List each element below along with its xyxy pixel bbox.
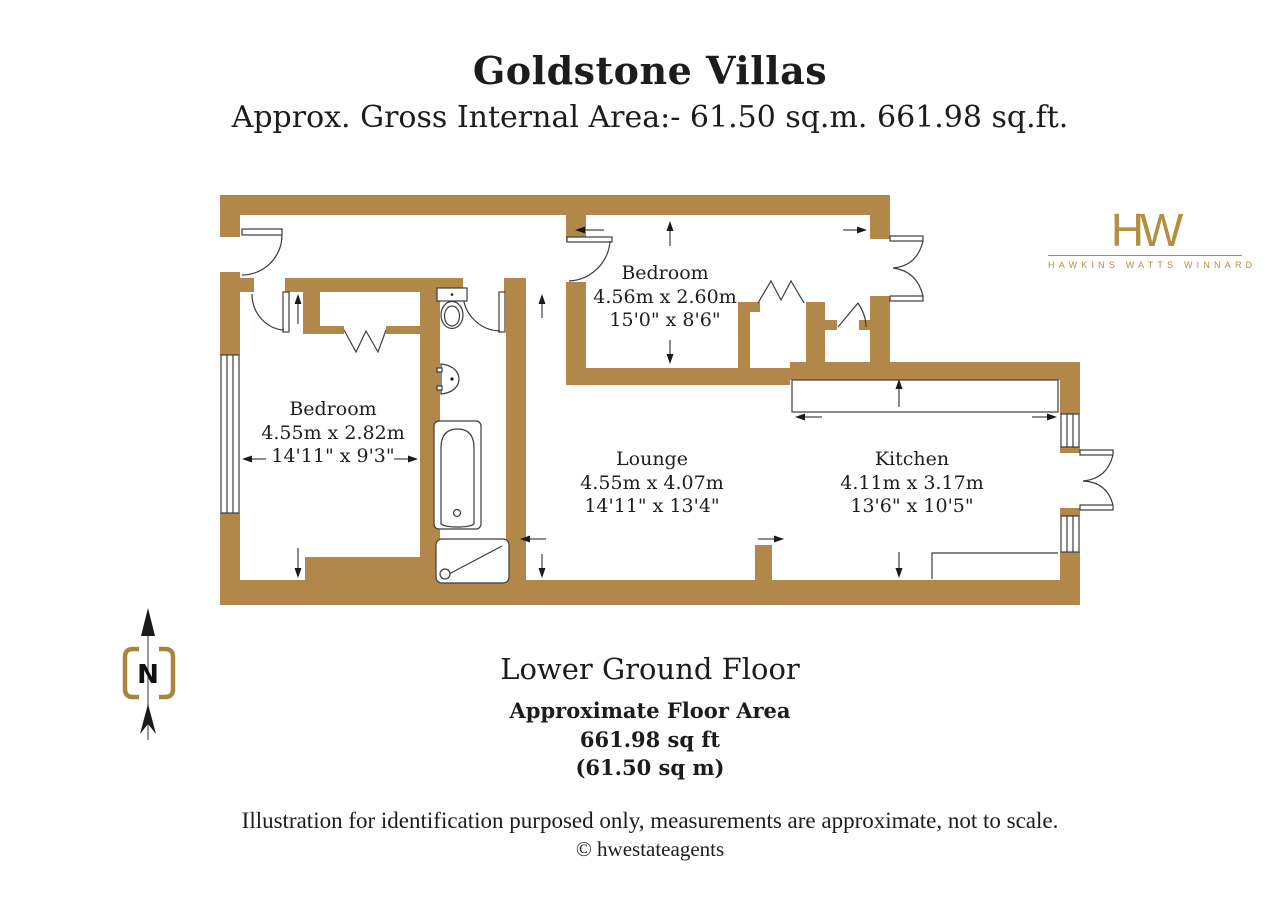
- window-kitchen-right-upper: [1061, 414, 1079, 447]
- room-dims-imperial: 14'11" x 9'3": [223, 445, 443, 469]
- shower-icon: [436, 539, 509, 583]
- room-dims-metric: 4.55m x 4.07m: [542, 472, 762, 496]
- room-name: Bedroom: [223, 398, 443, 422]
- bedroom-left-door: [252, 292, 289, 332]
- kitchen-counter: [932, 553, 1058, 579]
- room-dims-metric: 4.56m x 2.60m: [555, 286, 775, 310]
- floor-area-sqm: (61.50 sq m): [20, 754, 1280, 783]
- room-dims-metric: 4.55m x 2.82m: [223, 422, 443, 446]
- floor-area-sqft: 661.98 sq ft: [20, 726, 1280, 755]
- bathroom-fixtures: [434, 288, 509, 583]
- entrance-door: [242, 229, 282, 275]
- french-door-kitchen: [1080, 450, 1113, 510]
- toilet-icon: [437, 288, 467, 329]
- room-dims-imperial: 14'11" x 13'4": [542, 495, 762, 519]
- french-door-bedroom: [890, 236, 923, 301]
- room-label-bedroom-left: Bedroom 4.55m x 2.82m 14'11" x 9'3": [223, 398, 443, 469]
- floor-area-heading: Approximate Floor Area: [20, 697, 1280, 726]
- disclaimer-text: Illustration for identification purposed…: [20, 806, 1280, 836]
- copyright-text: © hwestateagents: [20, 836, 1280, 864]
- compass-arrowhead: [141, 608, 155, 636]
- room-dims-metric: 4.11m x 3.17m: [802, 472, 1022, 496]
- floor-area-block: Approximate Floor Area 661.98 sq ft (61.…: [20, 697, 1280, 783]
- room-label-lounge: Lounge 4.55m x 4.07m 14'11" x 13'4": [542, 448, 762, 519]
- wardrobe-bifold-doors-bedroom-left: [344, 330, 386, 352]
- room-name: Kitchen: [802, 448, 1022, 472]
- bathroom-door: [463, 292, 505, 332]
- room-label-kitchen: Kitchen 4.11m x 3.17m 13'6" x 10'5": [802, 448, 1022, 519]
- footer: Illustration for identification purposed…: [20, 806, 1280, 864]
- room-name: Lounge: [542, 448, 762, 472]
- floor-name: Lower Ground Floor: [20, 652, 1280, 686]
- room-dims-imperial: 13'6" x 10'5": [802, 495, 1022, 519]
- floorplan-page: Goldstone Villas Approx. Gross Internal …: [0, 0, 1280, 919]
- basin-icon: [437, 364, 459, 394]
- room-label-bedroom-top: Bedroom 4.56m x 2.60m 15'0" x 8'6": [555, 262, 775, 333]
- room-name: Bedroom: [555, 262, 775, 286]
- room-dims-imperial: 15'0" x 8'6": [555, 309, 775, 333]
- window-kitchen-top: [792, 380, 1058, 412]
- window-kitchen-right-lower: [1061, 516, 1079, 552]
